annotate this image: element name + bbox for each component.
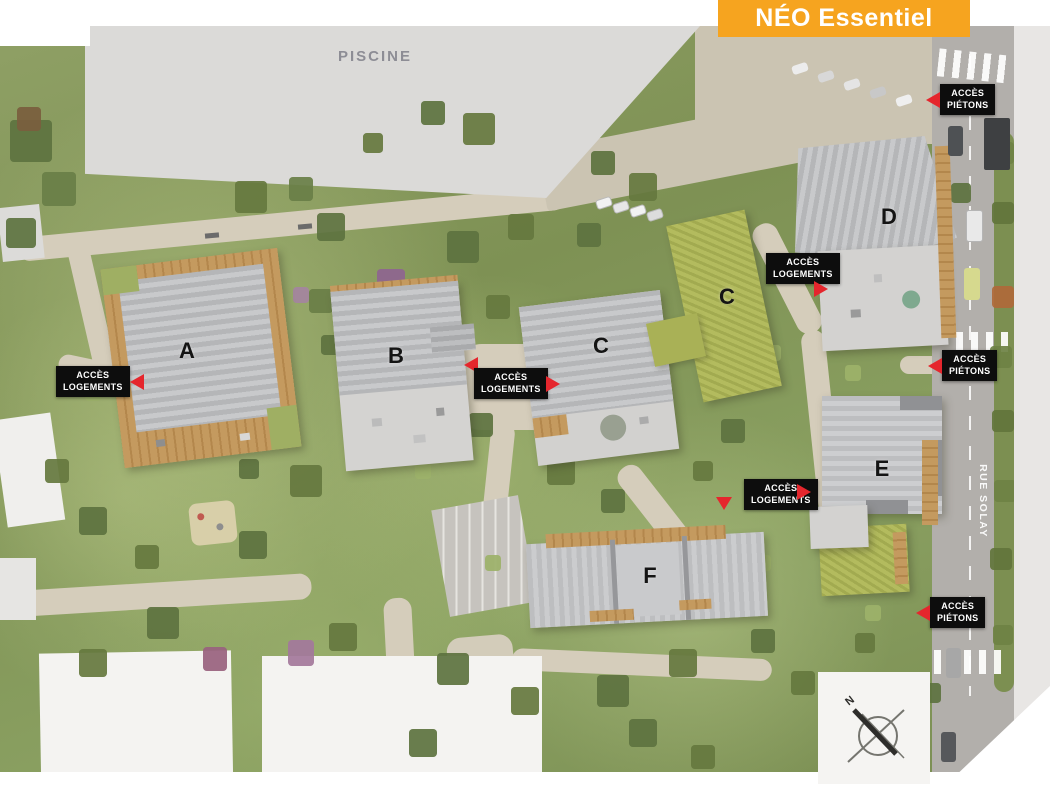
access-line2: LOGEMENTS: [773, 269, 833, 281]
building-label-c1: C: [593, 333, 609, 359]
access-pietons-north: ACCÈS PIÉTONS: [926, 84, 995, 115]
access-pietons-south: ACCÈS PIÉTONS: [916, 597, 985, 628]
arrow-right-icon: [797, 484, 811, 500]
access-label: ACCÈS PIÉTONS: [942, 350, 997, 381]
building-f-deck: [679, 599, 711, 611]
terrace-furniture: [874, 274, 882, 282]
access-line1: ACCÈS: [937, 601, 978, 613]
terrace-furniture: [240, 433, 251, 441]
building-e-deck: [922, 440, 938, 525]
site-plan: PISCINE: [0, 0, 1050, 800]
access-line2: PIÉTONS: [949, 366, 990, 378]
parking-area: [431, 495, 536, 617]
building-c1-deck: [532, 414, 568, 438]
building-label-b: B: [388, 343, 404, 369]
building-e-detail: [866, 500, 908, 514]
neighbour-building: [39, 650, 233, 777]
crosswalk-south: [934, 650, 1006, 674]
neighbour-building: [262, 656, 542, 776]
building-label-d: D: [881, 204, 897, 230]
building-e-greenroof-deck: [893, 532, 909, 585]
terrace-furniture: [436, 407, 445, 416]
parked-car: [646, 208, 664, 222]
compass-rose: N: [840, 692, 910, 768]
terrace-furniture: [851, 309, 861, 318]
building-a[interactable]: [100, 248, 301, 468]
project-banner: NÉO Essentiel: [718, 0, 970, 37]
access-logements-d: ACCÈS LOGEMENTS: [766, 253, 840, 284]
parked-car: [612, 200, 630, 214]
access-line1: ACCÈS: [949, 354, 990, 366]
arrow-left-icon: [130, 374, 144, 390]
access-label: ACCÈS PIÉTONS: [930, 597, 985, 628]
margin-top-left: [0, 0, 90, 46]
building-b[interactable]: [330, 281, 473, 471]
path-below-f: [512, 648, 773, 681]
arrow-left-icon: [916, 605, 930, 621]
building-label-a: A: [179, 338, 195, 364]
street-verge: [994, 132, 1014, 692]
building-label-c2: C: [719, 284, 735, 310]
access-line2: PIÉTONS: [947, 100, 988, 112]
path-southwest: [0, 573, 312, 618]
car: [964, 268, 980, 300]
car: [941, 732, 956, 762]
playground-equipment: [216, 523, 224, 531]
project-title: NÉO Essentiel: [755, 4, 932, 33]
arrow-left-icon: [926, 92, 940, 108]
building-b-wing: [430, 324, 476, 354]
parked-car: [629, 204, 647, 218]
access-line2: LOGEMENTS: [63, 382, 123, 394]
path-pool-south: [17, 185, 567, 262]
playground-equipment: [197, 513, 205, 521]
arrow-right-icon: [546, 376, 560, 392]
hot-tub: [902, 290, 921, 309]
access-line1: ACCÈS: [63, 370, 123, 382]
building-label-e: E: [875, 456, 890, 482]
access-line2: PIÉTONS: [937, 613, 978, 625]
building-e-annex[interactable]: [809, 505, 868, 549]
terrace-furniture: [372, 418, 383, 427]
car: [946, 648, 961, 678]
neighbour-building: [0, 204, 45, 262]
margin-right: [1014, 26, 1050, 800]
building-a-roof: [118, 264, 281, 433]
terrace-furniture: [413, 434, 426, 443]
access-pietons-mid: ACCÈS PIÉTONS: [928, 350, 997, 381]
terrace-furniture: [639, 416, 649, 424]
access-label: ACCÈS PIÉTONS: [940, 84, 995, 115]
access-label: ACCÈS LOGEMENTS: [474, 368, 548, 399]
neighbour-building: [0, 412, 65, 527]
building-e-detail: [900, 396, 942, 410]
access-line2: LOGEMENTS: [481, 384, 541, 396]
compass-north-label: N: [843, 694, 857, 708]
access-line1: ACCÈS: [773, 257, 833, 269]
terrace-furniture: [156, 439, 166, 447]
arrow-down-icon: [716, 497, 732, 510]
access-logements-west: ACCÈS LOGEMENTS: [56, 366, 144, 397]
building-label-f: F: [643, 563, 656, 589]
building-a-green-patch: [100, 265, 139, 295]
neighbour-building: [0, 558, 36, 620]
crosswalk-mid: [956, 332, 1008, 352]
playground: [188, 500, 238, 547]
building-a-green-patch: [267, 405, 302, 450]
access-line1: ACCÈS: [947, 88, 988, 100]
access-line1: ACCÈS: [481, 372, 541, 384]
building-f-deck: [590, 609, 635, 622]
access-label: ACCÈS LOGEMENTS: [56, 366, 130, 397]
pool-label: PISCINE: [310, 48, 440, 65]
car: [966, 210, 983, 242]
arrow-left-icon: [928, 358, 942, 374]
access-label: ACCÈS LOGEMENTS: [766, 253, 840, 284]
planter: [599, 413, 628, 442]
street-name-label: RUE SOLAY: [975, 463, 989, 539]
access-logements-central: ACCÈS LOGEMENTS: [474, 368, 548, 399]
arrow-right-icon: [814, 281, 828, 297]
street-shelter: [984, 118, 1010, 170]
car: [948, 126, 963, 156]
